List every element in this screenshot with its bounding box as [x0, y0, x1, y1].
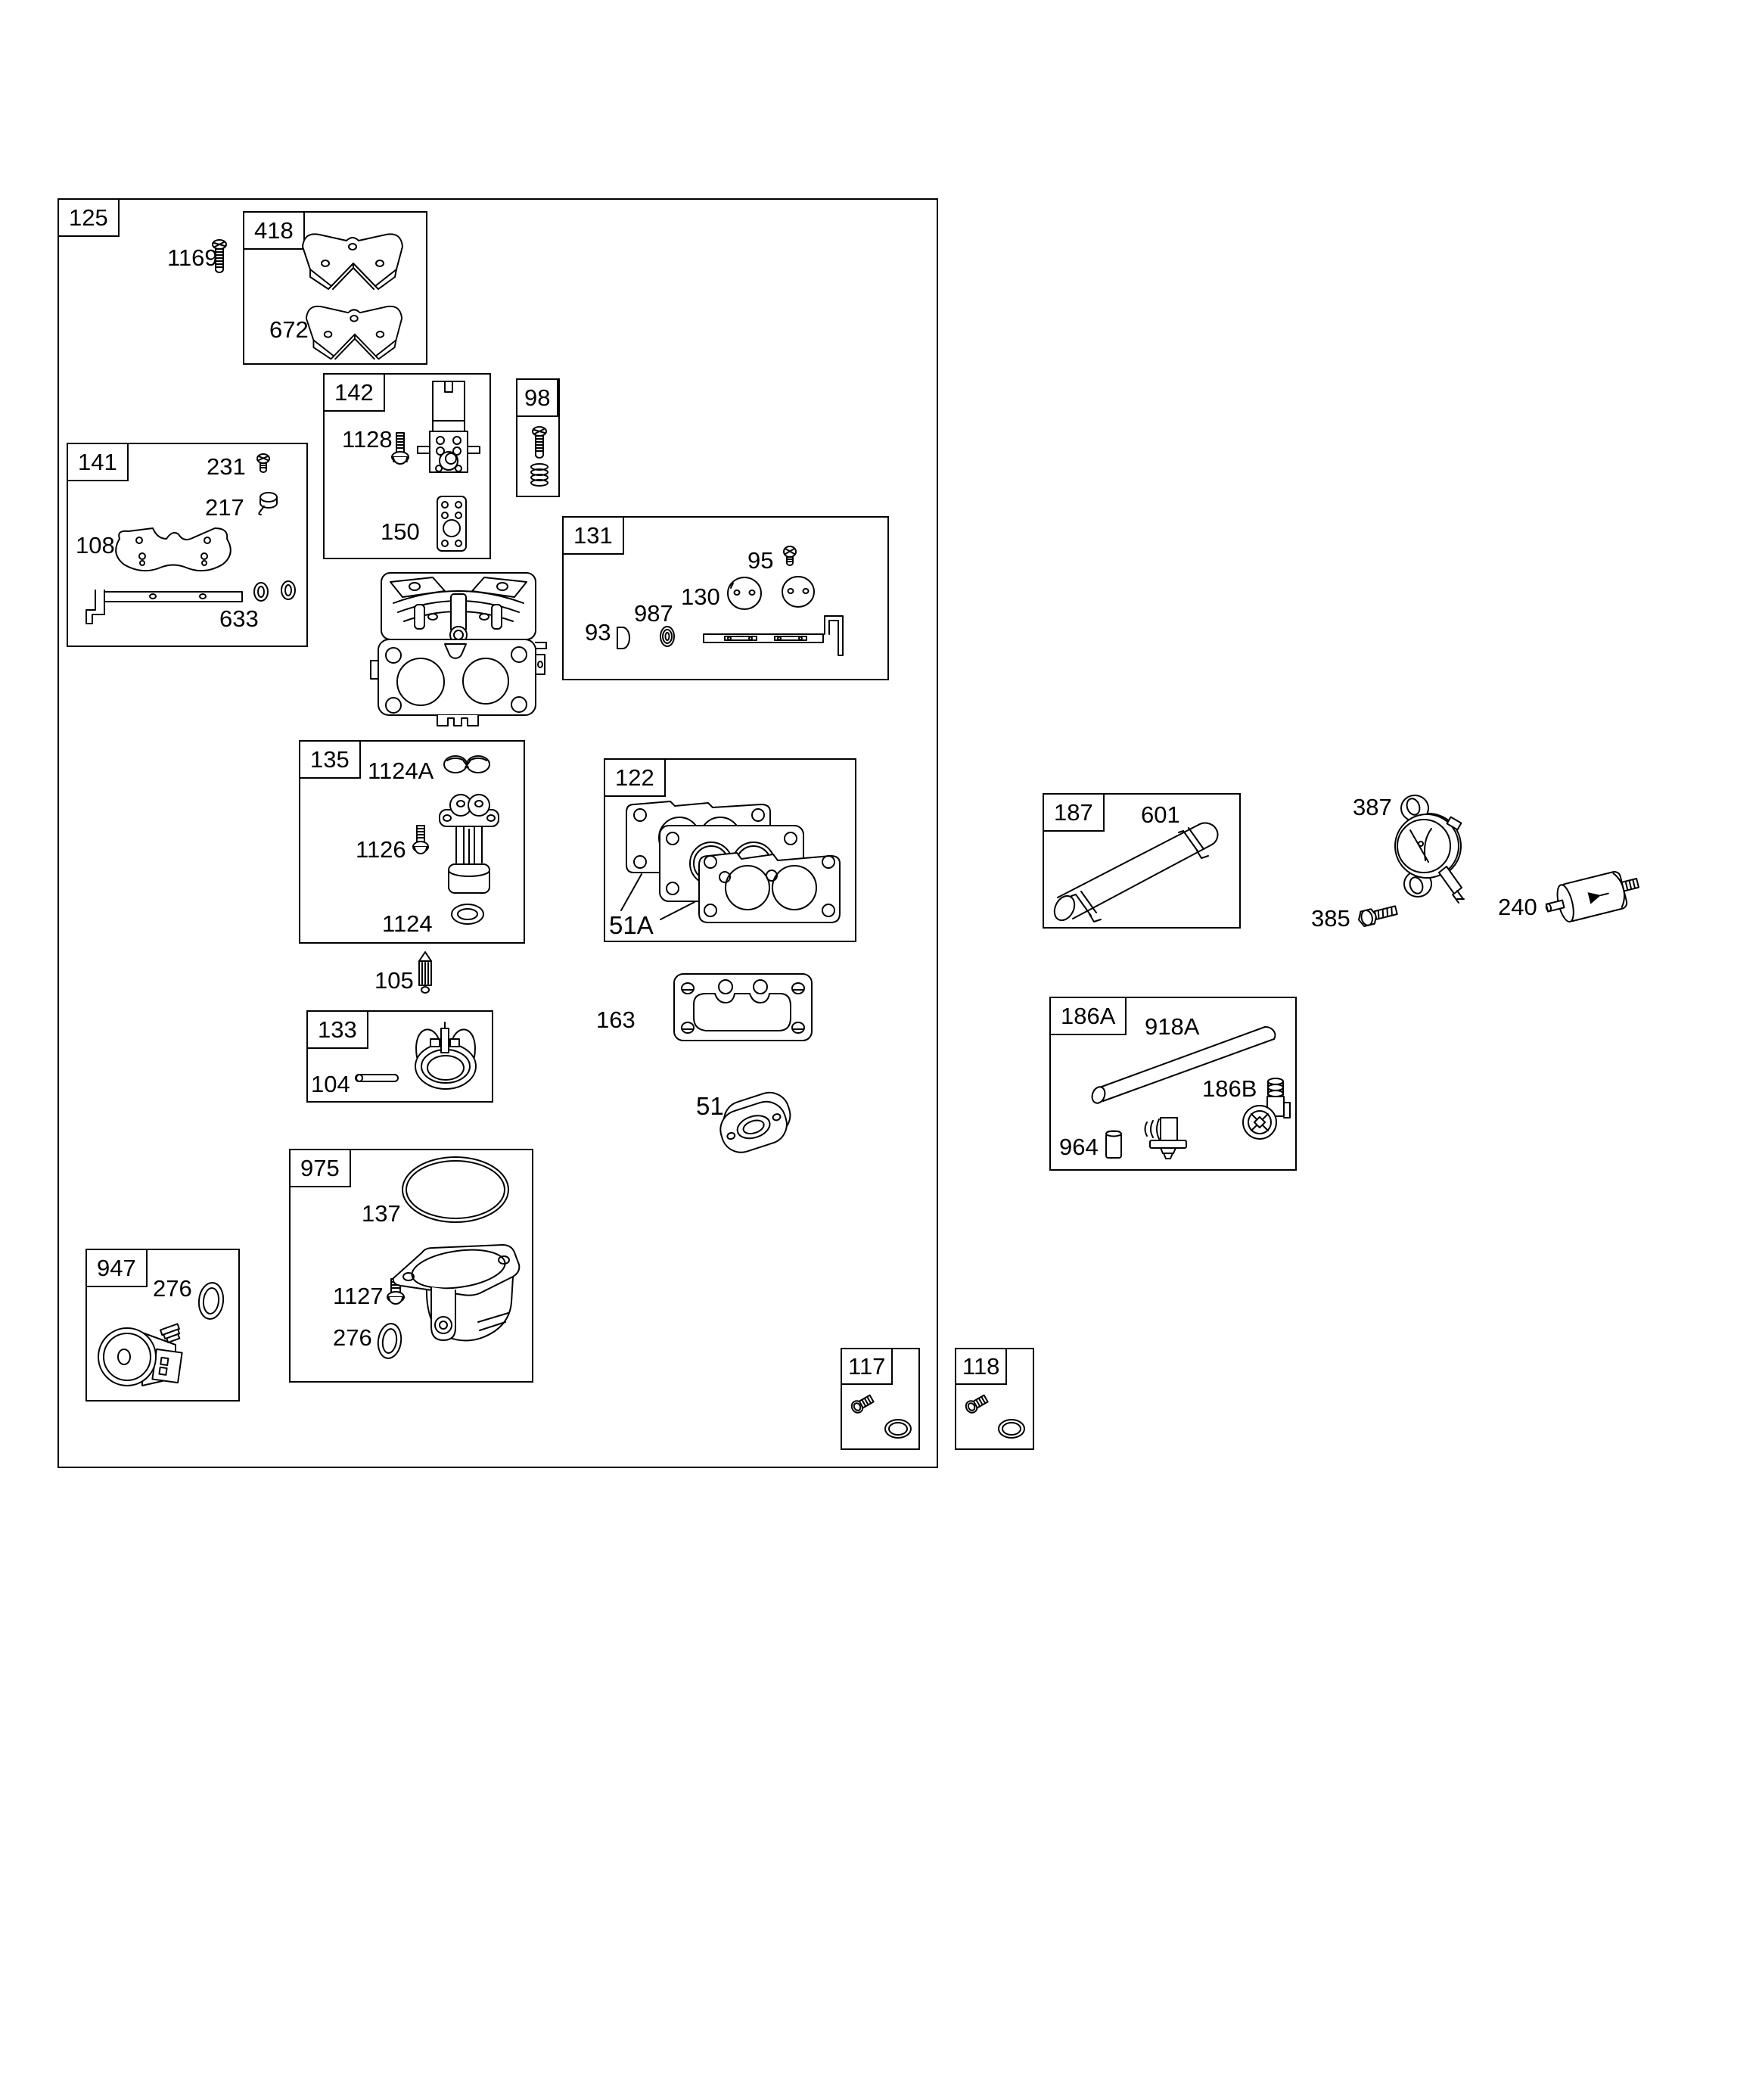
air-cleaner-plate-icon: [300, 226, 406, 295]
parts-diagram: 125 418 142 98 141 131 135 122 133 975 9…: [0, 0, 1759, 2100]
o-ring-icon: [997, 1418, 1026, 1439]
part-label-163: 163: [596, 1008, 636, 1031]
nozzle-icon: [440, 784, 499, 898]
pin-icon: [354, 1072, 401, 1084]
elbow-fitting-icon: [1240, 1077, 1291, 1144]
bolt-icon: [965, 1393, 989, 1415]
fuel-bowl-icon: [389, 1239, 524, 1349]
part-label-1128: 1128: [342, 428, 393, 451]
part-label-1124A: 1124A: [368, 759, 434, 782]
o-ring-icon: [400, 1154, 511, 1225]
group-label-975: 975: [289, 1149, 351, 1187]
group-label-141: 141: [67, 443, 129, 481]
part-label-105: 105: [374, 969, 414, 992]
clip-icon: [257, 491, 278, 515]
elbow-fitting-icon: [1142, 1100, 1193, 1163]
solenoid-bracket-icon: [418, 380, 480, 484]
group-label-133: 133: [306, 1010, 368, 1049]
gasket-icon: [436, 495, 468, 552]
bolt-icon: [850, 1393, 875, 1415]
float-icon: [443, 749, 491, 778]
leader-line: [605, 863, 704, 928]
part-label-93: 93: [585, 621, 611, 644]
bracket-rod-icon: [83, 581, 248, 628]
part-label-1126: 1126: [356, 838, 406, 861]
screw-icon: [211, 239, 228, 275]
part-label-240: 240: [1498, 895, 1537, 919]
screw-icon: [255, 453, 272, 475]
throttle-shaft-icon: [702, 611, 850, 658]
screw-icon: [782, 546, 797, 568]
part-label-108: 108: [76, 534, 115, 557]
part-label-987: 987: [634, 602, 673, 625]
part-label-1124: 1124: [382, 912, 433, 935]
group-label-947: 947: [85, 1249, 148, 1287]
fuel-solenoid-icon: [97, 1314, 192, 1389]
needle-valve-icon: [417, 951, 434, 995]
part-label-276-solenoid: 276: [153, 1277, 192, 1300]
o-ring-icon: [197, 1280, 225, 1321]
fuel-pump-icon: [1385, 791, 1466, 902]
part-label-137: 137: [362, 1202, 401, 1225]
gasket-icon: [673, 971, 815, 1044]
bolt-icon: [1359, 898, 1398, 931]
part-label-104: 104: [311, 1072, 350, 1096]
group-label-142: 142: [323, 373, 385, 412]
gasket-icon: [113, 525, 233, 578]
spacer-icon: [717, 1088, 794, 1155]
group-label-98: 98: [516, 378, 558, 417]
group-label-418: 418: [243, 211, 305, 250]
throttle-disc-icon: [781, 575, 816, 608]
part-label-1127: 1127: [333, 1284, 384, 1308]
plug-icon: [614, 625, 629, 651]
group-label-122: 122: [604, 758, 666, 797]
air-cleaner-plate-icon: [301, 298, 407, 365]
part-label-1169: 1169: [167, 246, 218, 269]
group-label-131: 131: [562, 516, 624, 555]
fuel-filter-icon: [1546, 857, 1645, 935]
group-label-135: 135: [299, 740, 361, 779]
washer-icon: [660, 625, 676, 648]
part-label-130: 130: [681, 585, 720, 608]
part-label-276-bowl: 276: [333, 1326, 372, 1349]
group-label-118: 118: [955, 1348, 1007, 1385]
o-ring-icon: [884, 1418, 912, 1439]
spring-icon: [530, 462, 549, 488]
part-label-964: 964: [1059, 1135, 1099, 1159]
throttle-disc-icon: [726, 576, 763, 611]
part-label-95: 95: [747, 549, 773, 572]
screw-icon: [531, 426, 548, 461]
washer-icon: [253, 581, 269, 602]
washer-icon: [281, 580, 297, 601]
part-label-385: 385: [1311, 907, 1350, 930]
o-ring-icon: [450, 902, 486, 927]
sleeve-icon: [1105, 1128, 1124, 1160]
carburetor-body-icon: [371, 571, 546, 724]
part-label-217: 217: [205, 496, 244, 519]
group-label-117: 117: [841, 1348, 893, 1385]
part-label-231: 231: [207, 455, 246, 478]
group-label-125: 125: [57, 198, 120, 237]
part-label-150: 150: [381, 520, 420, 543]
screw-icon: [390, 431, 410, 468]
screw-icon: [412, 824, 430, 860]
float-icon: [405, 1018, 486, 1093]
fuel-hose-icon: [1050, 808, 1235, 923]
